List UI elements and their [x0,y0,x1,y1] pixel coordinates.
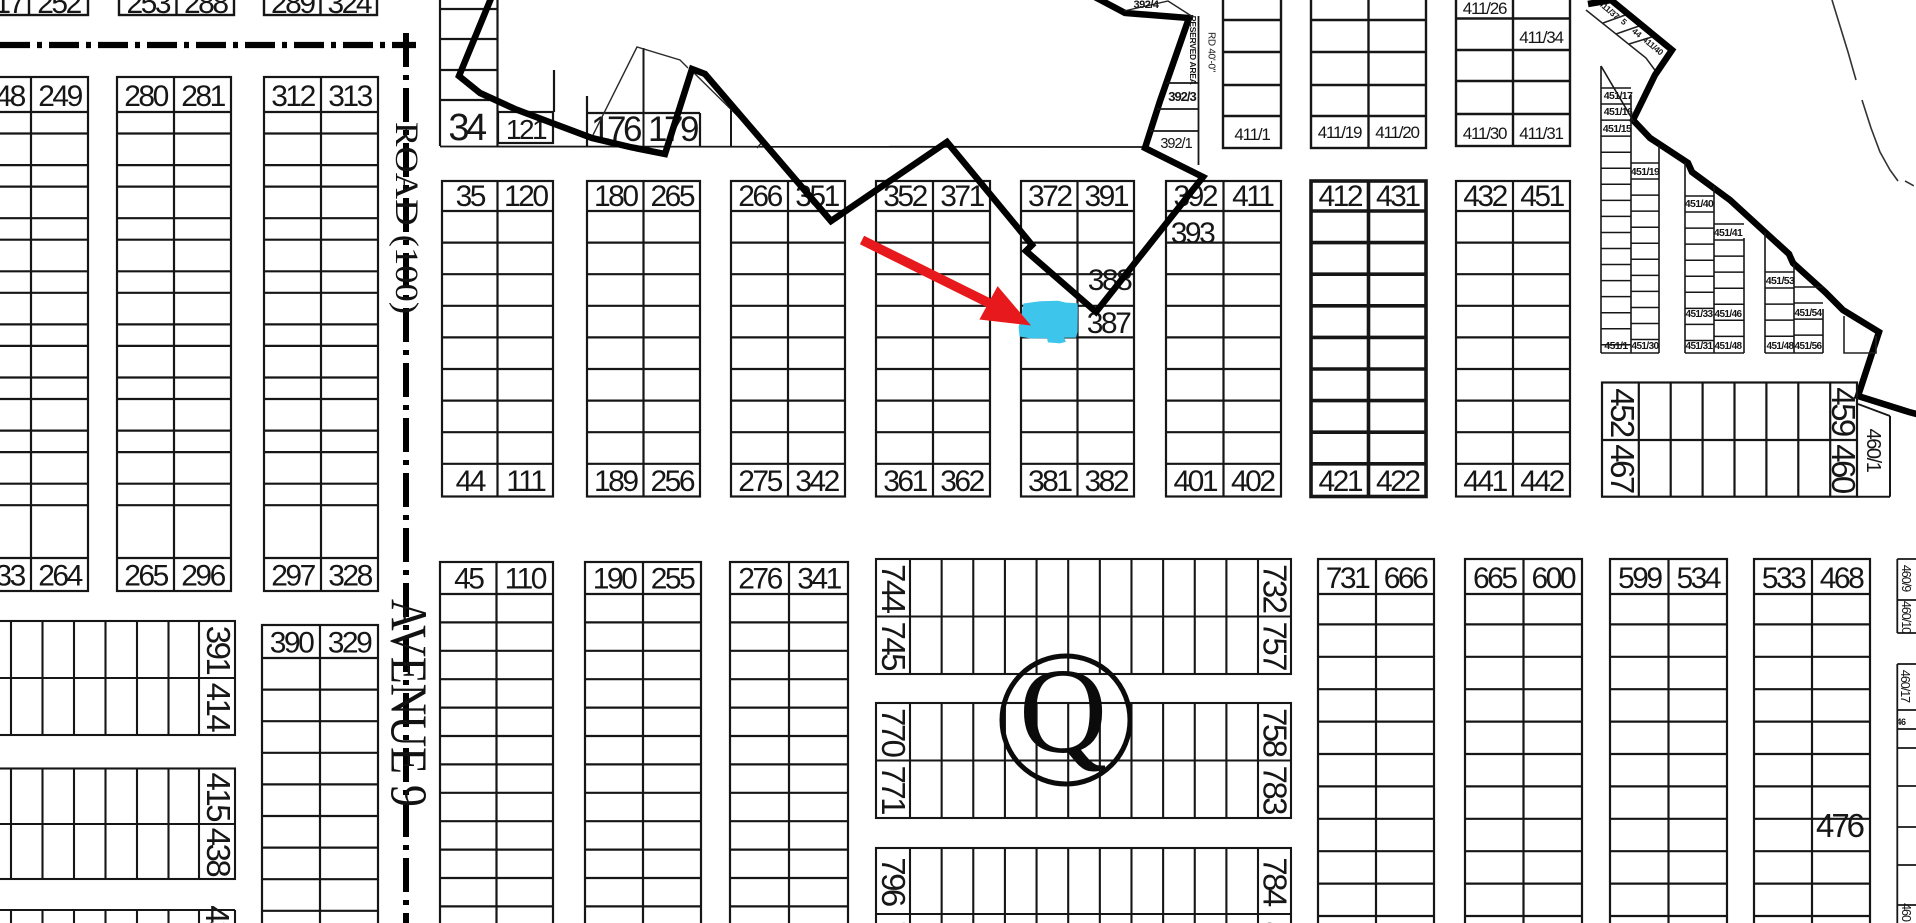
svg-text:665: 665 [1473,562,1517,595]
svg-text:297: 297 [271,559,315,592]
svg-text:35: 35 [456,180,486,213]
svg-text:731: 731 [1326,562,1370,595]
svg-text:459: 459 [1825,387,1862,436]
svg-text:745: 745 [875,621,912,670]
svg-text:451/31: 451/31 [1686,341,1714,352]
svg-text:411/19: 411/19 [1318,123,1362,142]
svg-text:460/17: 460/17 [1898,670,1912,703]
svg-text:252: 252 [37,0,81,20]
svg-text:275: 275 [738,465,782,498]
svg-text:412: 412 [1318,180,1362,213]
svg-text:666: 666 [1384,562,1428,595]
svg-text:451/41: 451/41 [1714,227,1743,239]
svg-text:256: 256 [650,465,694,498]
svg-text:180: 180 [594,180,638,213]
svg-text:442: 442 [1520,465,1564,498]
svg-text:328: 328 [328,559,372,592]
svg-text:46: 46 [1896,717,1906,727]
svg-text:281: 281 [181,80,225,113]
svg-text:451/40: 451/40 [1685,198,1714,210]
svg-text:402: 402 [1231,465,1275,498]
svg-text:391: 391 [200,626,237,675]
svg-text:120: 120 [504,180,548,213]
svg-text:431: 431 [1376,180,1420,213]
svg-text:382: 382 [1084,465,1128,498]
svg-text:312: 312 [271,80,315,113]
svg-text:796: 796 [875,857,912,906]
svg-text:393: 393 [1171,217,1215,250]
svg-text:280: 280 [124,80,168,113]
svg-text:401: 401 [1173,465,1217,498]
svg-text:276: 276 [738,563,782,596]
svg-text:411/26: 411/26 [1463,0,1507,18]
svg-text:451/48: 451/48 [1767,341,1795,352]
svg-text:341: 341 [797,563,841,596]
svg-text:411/34: 411/34 [1519,28,1563,47]
svg-text:255: 255 [651,563,695,596]
svg-text:264: 264 [38,559,82,592]
svg-text:Q: Q [1019,644,1107,779]
svg-text:476: 476 [1816,807,1864,844]
svg-text:533: 533 [1762,562,1806,595]
svg-text:411/20: 411/20 [1375,123,1419,142]
svg-text:189: 189 [594,465,638,498]
svg-text:460/10: 460/10 [1899,601,1913,634]
svg-text:411/1: 411/1 [1234,125,1270,144]
svg-text:451/16: 451/16 [1604,106,1633,118]
svg-text:329: 329 [328,626,372,659]
svg-text:110: 110 [505,563,547,596]
svg-text:451/1: 451/1 [1604,340,1628,352]
svg-text:451: 451 [1520,180,1564,213]
svg-text:468: 468 [1820,562,1864,595]
svg-text:757: 757 [1256,621,1293,670]
svg-text:451/54: 451/54 [1795,308,1823,319]
svg-text:421: 421 [1318,465,1362,498]
svg-text:296: 296 [181,559,225,592]
svg-text:392/1: 392/1 [1160,136,1192,152]
svg-text:451/30: 451/30 [1632,341,1660,352]
svg-text:599: 599 [1618,562,1662,595]
svg-text:266: 266 [738,180,782,213]
svg-text:AVENUE 9: AVENUE 9 [379,599,436,807]
svg-text:783: 783 [1256,765,1293,814]
svg-text:439: 439 [199,905,236,923]
svg-text:265: 265 [650,180,694,213]
svg-text:248: 248 [0,80,26,113]
svg-text:ROAD (100): ROAD (100) [388,122,424,314]
svg-text:391: 391 [1084,180,1128,213]
svg-text:249: 249 [38,80,82,113]
svg-text:438: 438 [200,828,237,877]
svg-text:190: 190 [593,563,637,596]
svg-text:233: 233 [0,559,26,592]
svg-text:415: 415 [200,772,237,821]
svg-text:34: 34 [448,107,487,149]
svg-text:770: 770 [875,708,912,758]
svg-text:432: 432 [1463,180,1507,213]
svg-text:44: 44 [456,465,486,498]
svg-text:411/31: 411/31 [1519,124,1563,143]
svg-text:451/48: 451/48 [1715,341,1743,352]
svg-text:451/33: 451/33 [1686,309,1714,320]
svg-text:452: 452 [1604,388,1641,437]
svg-text:253: 253 [126,0,170,20]
svg-text:371: 371 [940,180,984,213]
svg-text:45: 45 [454,563,484,596]
svg-text:732: 732 [1256,564,1293,613]
svg-text:362: 362 [940,465,984,498]
svg-text:111: 111 [506,465,546,498]
svg-text:411/30: 411/30 [1463,124,1507,143]
svg-text:RESERVED AREA: RESERVED AREA [1188,16,1198,85]
svg-text:217: 217 [0,0,25,20]
svg-text:600: 600 [1531,562,1575,595]
svg-text:313: 313 [328,80,372,113]
svg-text:451/53: 451/53 [1766,275,1795,287]
svg-text:771: 771 [875,765,912,814]
svg-text:265: 265 [124,559,168,592]
svg-text:RD 40'-0": RD 40'-0" [1206,32,1217,73]
svg-text:451/19: 451/19 [1631,166,1660,178]
svg-text:451/56: 451/56 [1795,341,1823,352]
svg-text:392/3: 392/3 [1168,89,1196,104]
svg-text:352: 352 [883,180,927,213]
svg-text:414: 414 [200,683,237,733]
svg-text:361: 361 [883,465,927,498]
svg-text:390: 390 [270,626,314,659]
svg-text:460/9: 460/9 [1899,565,1913,592]
svg-text:392/4: 392/4 [1133,0,1159,11]
svg-text:534: 534 [1676,562,1720,595]
svg-text:460/1: 460/1 [1862,428,1884,472]
svg-text:451/17: 451/17 [1604,90,1633,102]
svg-text:441: 441 [1463,465,1507,498]
svg-text:460: 460 [1899,903,1913,922]
svg-text:342: 342 [795,465,839,498]
svg-text:288: 288 [184,0,228,20]
svg-text:451/15: 451/15 [1603,123,1632,135]
svg-text:758: 758 [1256,708,1293,757]
svg-text:289: 289 [271,0,315,20]
svg-text:381: 381 [1028,465,1072,498]
svg-text:324: 324 [327,0,371,20]
svg-text:411: 411 [1232,180,1274,213]
svg-text:451/46: 451/46 [1715,309,1743,320]
svg-text:372: 372 [1028,180,1072,213]
svg-text:422: 422 [1376,465,1420,498]
svg-text:460: 460 [1825,444,1862,494]
svg-text:467: 467 [1604,444,1641,493]
svg-text:744: 744 [875,564,912,614]
svg-text:784: 784 [1256,857,1293,907]
